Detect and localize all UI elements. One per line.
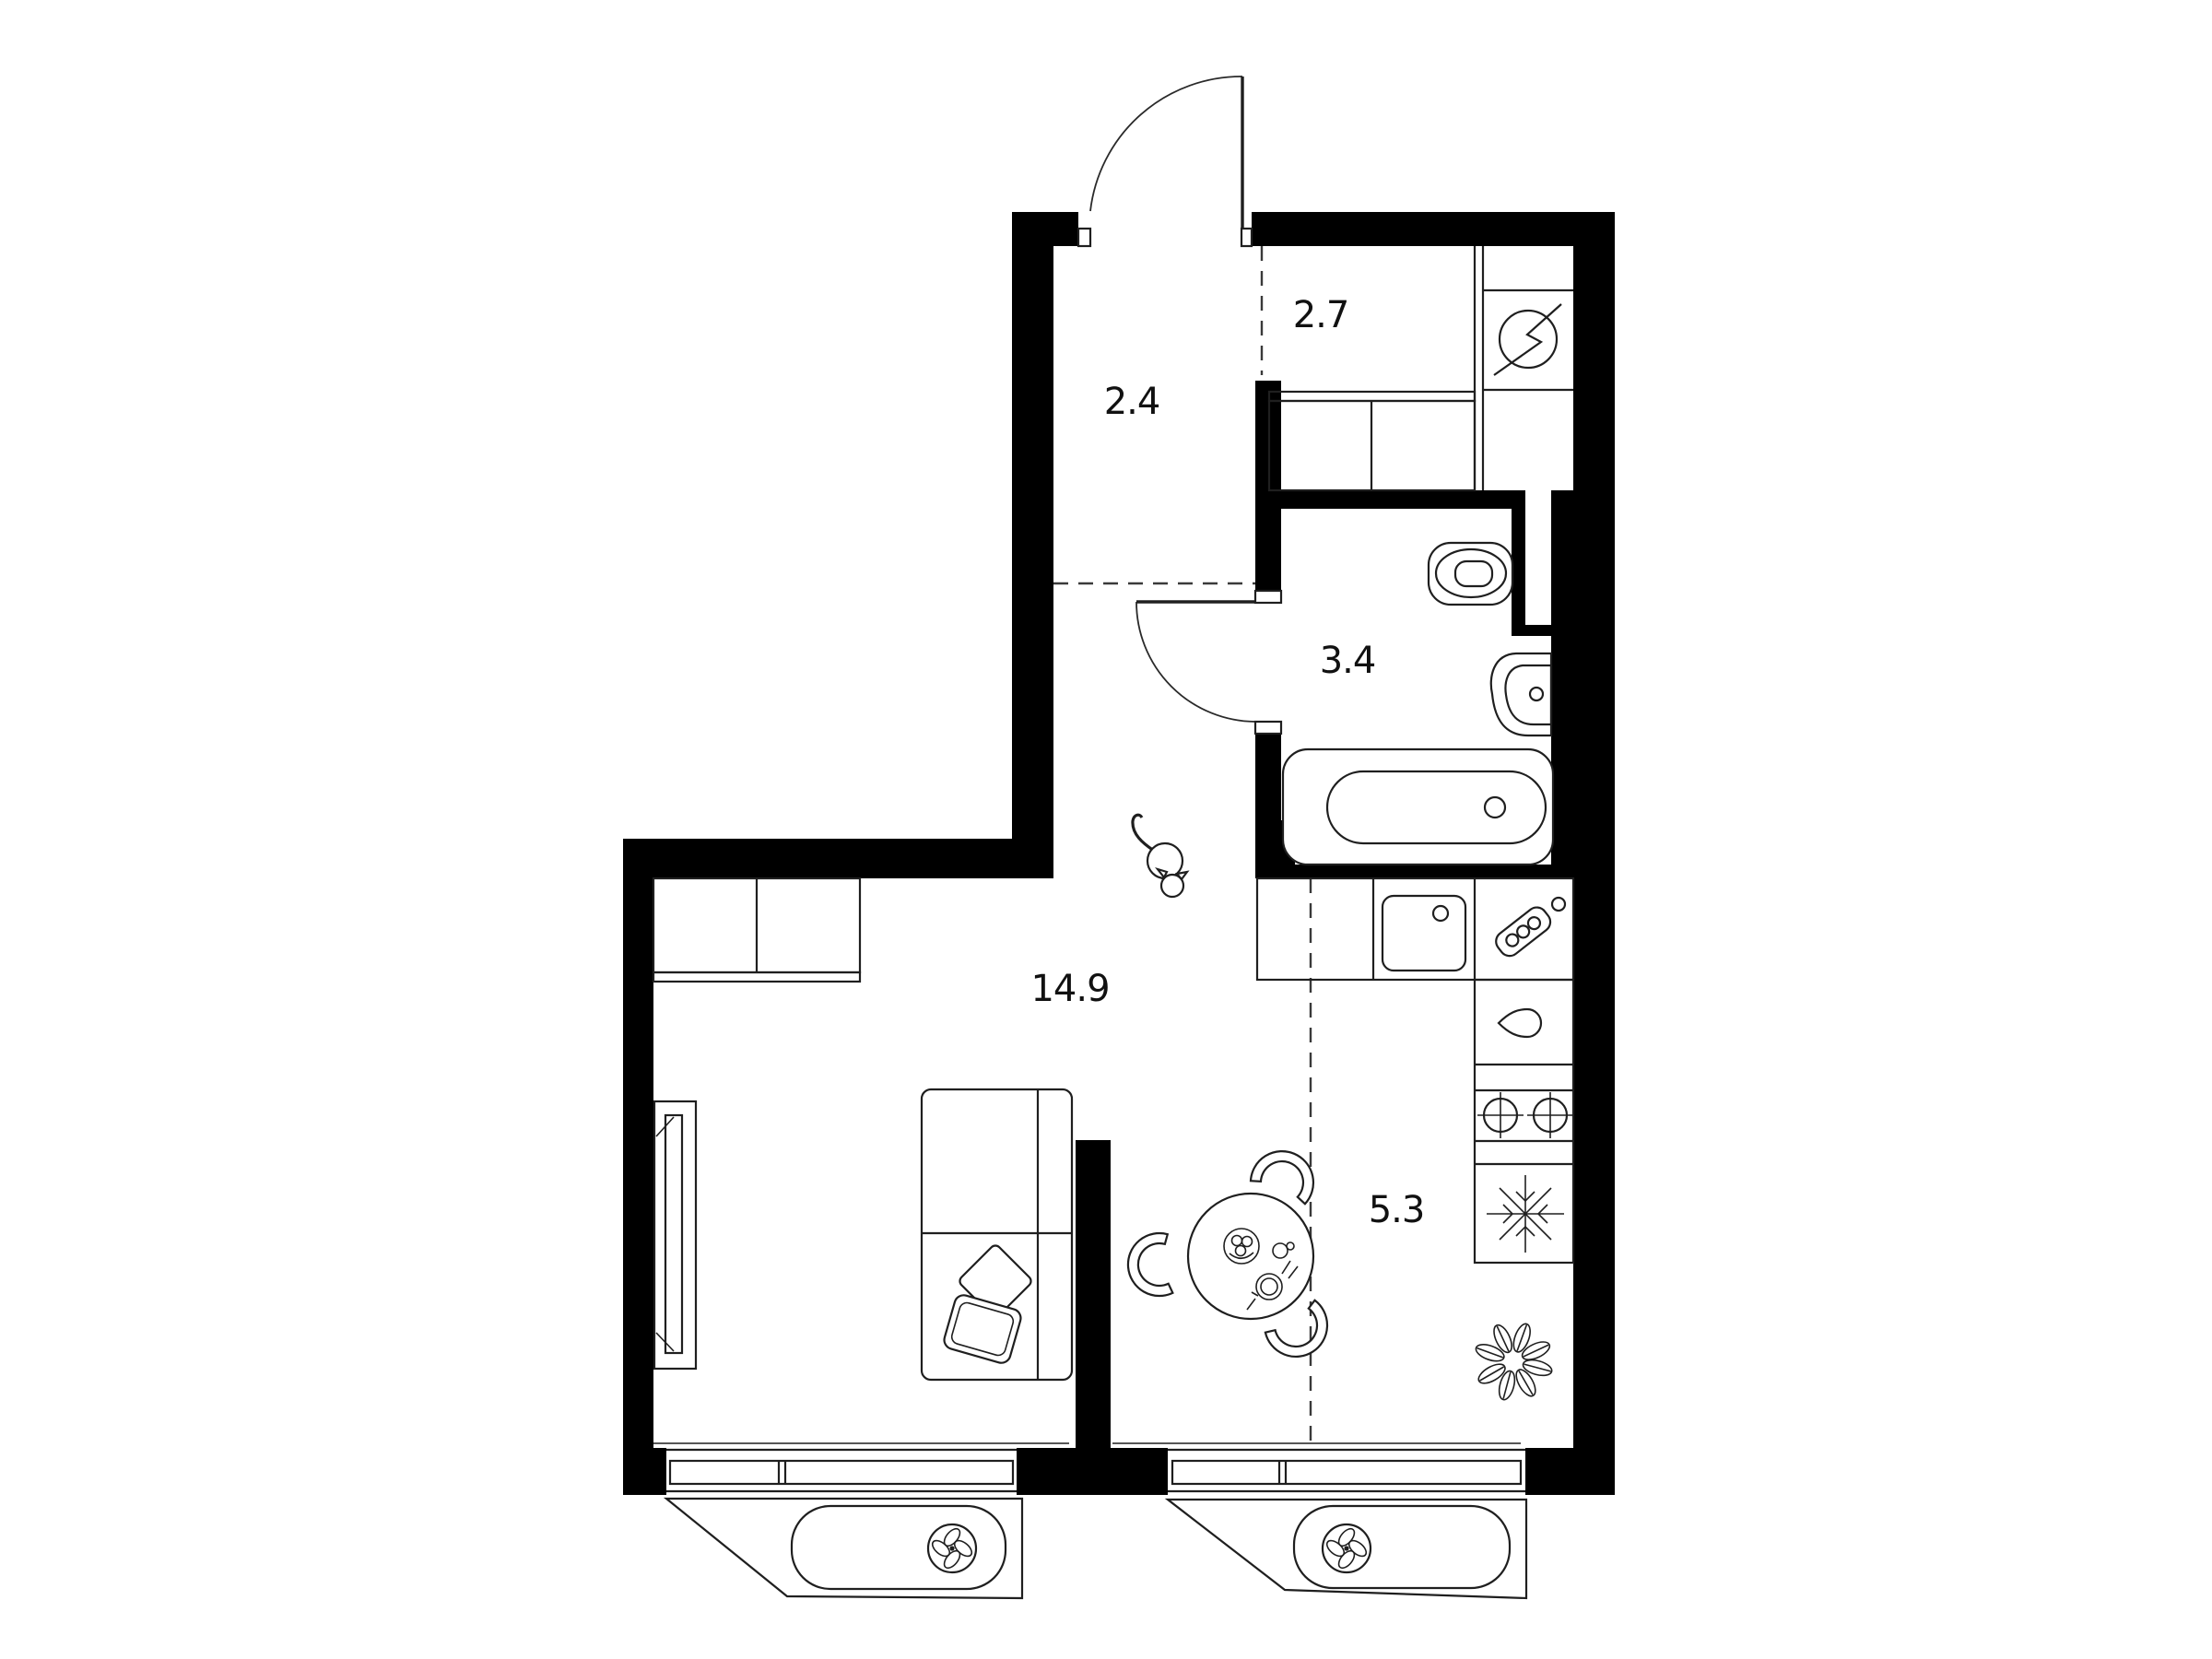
bottom-wall-right-corner — [1525, 1448, 1615, 1495]
kitchen-area-label: 5.3 — [1369, 1189, 1425, 1231]
top-wall — [1252, 212, 1615, 246]
storage-area-label: 2.7 — [1293, 294, 1349, 336]
niche-bottom-wall — [1512, 625, 1551, 636]
bathtub — [1283, 749, 1553, 865]
right-wall-bathroom — [1551, 490, 1615, 878]
bathtub-body — [1283, 749, 1553, 865]
living-room-area-label: 14.9 — [1030, 968, 1109, 1010]
bathroom-door-jamb-bottom — [1255, 722, 1281, 734]
toilet-body — [1429, 543, 1512, 605]
niche-left-wall — [1512, 509, 1525, 636]
right-wall-lower — [1573, 878, 1615, 1495]
kitchen-living-partition-stub — [1076, 1140, 1111, 1448]
entrance-door-jamb-right — [1241, 229, 1252, 246]
floor-plan-canvas: 2.4 2.7 3.4 14.9 5.3 — [0, 0, 2212, 1659]
left-wall — [623, 839, 653, 1495]
dining-table — [1188, 1194, 1313, 1319]
bathroom-door-jamb-top — [1255, 591, 1281, 603]
kitchen-sink-faucet — [1433, 906, 1448, 921]
toilet — [1429, 543, 1512, 605]
bottom-wall-middle-pier — [1017, 1448, 1168, 1495]
right-wall-upper — [1573, 212, 1615, 490]
tv-screen — [665, 1115, 682, 1353]
hallway-area-label: 2.4 — [1104, 381, 1160, 423]
living-room-top-wall — [623, 839, 1053, 878]
washbasin-faucet — [1530, 688, 1543, 700]
bathroom-top-wall — [1255, 490, 1525, 509]
bathroom-bottom-wall — [1255, 865, 1576, 878]
bathroom-area-label: 3.4 — [1320, 640, 1376, 682]
hallway-left-wall — [1012, 212, 1053, 878]
entrance-door-jamb-left — [1078, 229, 1090, 246]
sofa — [922, 1089, 1072, 1380]
floor-plan-page: 2.4 2.7 3.4 14.9 5.3 — [0, 0, 2212, 1659]
